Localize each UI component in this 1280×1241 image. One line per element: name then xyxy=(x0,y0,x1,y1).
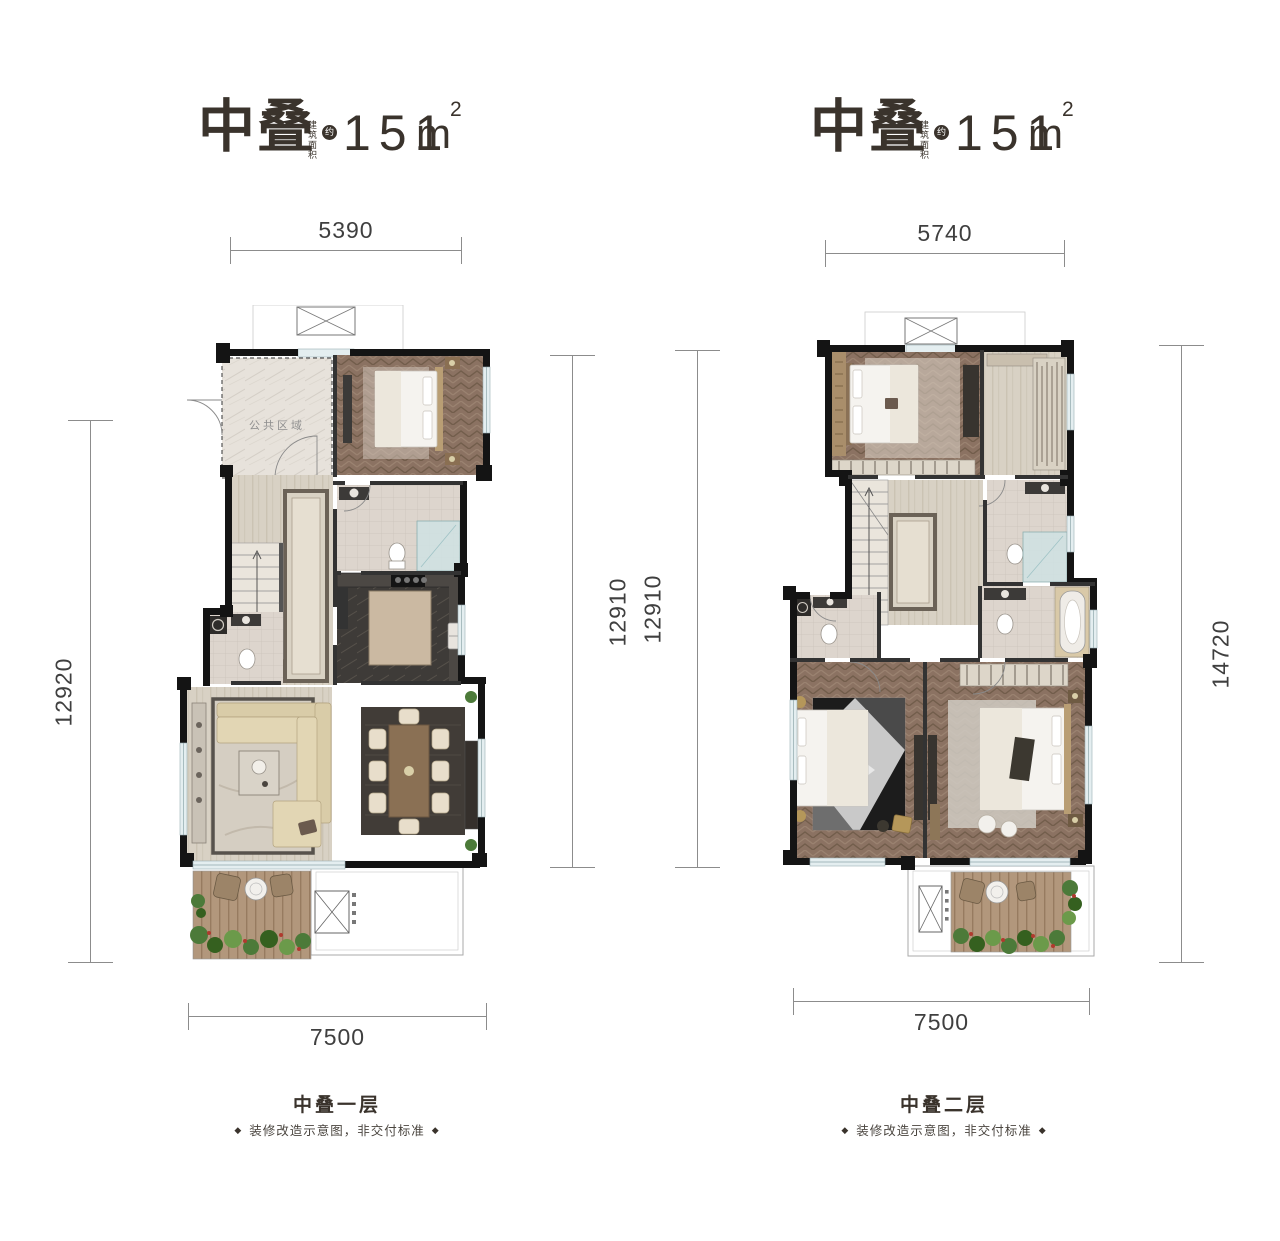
terrace xyxy=(908,866,1094,956)
plan2-title-block: 中叠 建筑面积 约 151 m 2 xyxy=(810,96,1110,168)
bathroom-upper xyxy=(979,480,1067,582)
bedroom-upper xyxy=(832,352,980,475)
kitchen xyxy=(337,573,459,683)
plan1-dim-right-value: 12910 xyxy=(605,577,632,646)
plan1-dim-bottom-value: 7500 xyxy=(188,1024,487,1051)
plan2-area-unit-sup: 2 xyxy=(1062,98,1074,122)
plan1-approx-badge: 约 xyxy=(322,125,337,140)
plan2-disclaimer-text: 装修改造示意图，非交付标准 xyxy=(856,1124,1032,1138)
plan2-disclaimer: ◆装修改造示意图，非交付标准◆ xyxy=(789,1120,1099,1139)
plan1-dim-top-value: 5390 xyxy=(230,217,462,244)
plan2-title: 中叠 xyxy=(810,96,928,158)
plan1-area-unit-sup: 2 xyxy=(450,98,462,122)
plan1-area-label: 建筑面积 xyxy=(305,120,318,162)
bathroom-small xyxy=(792,595,877,658)
bathroom xyxy=(337,485,460,571)
room-public-area: 公共区域 xyxy=(187,358,332,478)
bedroom-second xyxy=(792,662,923,858)
plan2-dim-top-value: 5740 xyxy=(825,220,1065,247)
ornament-diamond-icon: ◆ xyxy=(841,1125,849,1135)
ornament-diamond-icon: ◆ xyxy=(1039,1125,1047,1135)
living-room xyxy=(186,687,332,861)
powder-room xyxy=(207,612,283,684)
ornament-diamond-icon: ◆ xyxy=(234,1125,242,1135)
plan2-dim-bottom-value: 7500 xyxy=(793,1009,1090,1036)
plan1-floor-label: 中叠一层 xyxy=(207,1090,467,1117)
floor-plan-level2-drawing xyxy=(765,310,1125,980)
plan2-area-unit: m xyxy=(1028,110,1063,158)
bedroom xyxy=(337,355,483,475)
plan1-title: 中叠 xyxy=(198,96,316,158)
plan1-title-block: 中叠 建筑面积 约 151 m 2 xyxy=(198,96,498,168)
plan2-area-label: 建筑面积 xyxy=(917,120,930,162)
walk-in-closet xyxy=(984,352,1067,475)
room-label-public-area: 公共区域 xyxy=(249,419,305,432)
plan1-area-unit: m xyxy=(416,110,451,158)
plan2-floor-label: 中叠二层 xyxy=(814,1090,1074,1117)
plan1-disclaimer: ◆装修改造示意图，非交付标准◆ xyxy=(182,1120,492,1139)
floor-plan-level1-drawing: 公共区域 xyxy=(165,305,525,975)
plan1-disclaimer-text: 装修改造示意图，非交付标准 xyxy=(249,1124,425,1138)
plan2-approx-badge: 约 xyxy=(934,125,949,140)
dining-room xyxy=(361,691,478,851)
floorplan-sheet: 中叠 建筑面积 约 151 m 2 5390 12920 12910 7500 xyxy=(0,0,1280,1241)
bedroom-master xyxy=(914,662,1085,858)
plan2-dim-left-value: 12910 xyxy=(640,575,667,644)
plan2-dim-right-value: 14720 xyxy=(1208,620,1235,689)
bathroom-master xyxy=(982,586,1090,658)
terrace xyxy=(190,867,463,959)
plan1-dim-left-value: 12920 xyxy=(51,657,78,726)
ornament-diamond-icon: ◆ xyxy=(432,1125,440,1135)
